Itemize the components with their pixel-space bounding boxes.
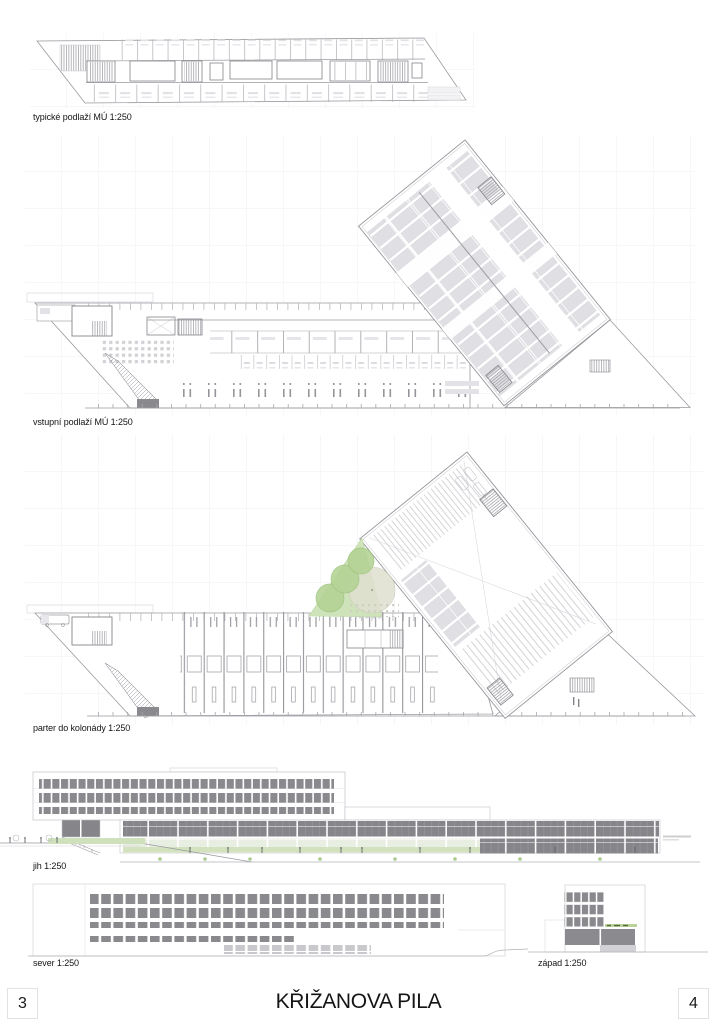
entry-floor-plan-figure <box>25 135 695 415</box>
north-elevation-label: sever 1:250 <box>33 958 79 968</box>
entry-floor-plan-drawing <box>25 135 695 415</box>
south-elevation-figure <box>0 765 717 865</box>
facade-panels <box>123 821 659 837</box>
green-roof-note <box>605 924 637 927</box>
north-elevation-figure <box>28 880 528 960</box>
colonnade-bays <box>180 612 438 713</box>
green-slope <box>48 838 145 844</box>
tree-icon <box>348 548 374 574</box>
colonnade-plan-figure <box>25 435 705 725</box>
window-grid <box>90 890 444 928</box>
column-pairs <box>175 383 470 397</box>
sheet-title: KŘIŽANOVA PILA <box>0 990 717 1014</box>
illegible-note <box>663 836 691 841</box>
window-grid <box>39 776 334 814</box>
typical-floor-plan-figure <box>30 33 475 108</box>
typical-floor-plan-drawing <box>30 33 475 108</box>
west-elevation-drawing <box>528 880 708 960</box>
entry-floor-plan-label: vstupní podlaží MÚ 1:250 <box>33 417 133 427</box>
west-elevation-label: západ 1:250 <box>538 958 586 968</box>
typical-floor-plan-label: typické podlaží MÚ 1:250 <box>33 112 132 122</box>
page-number-right: 4 <box>678 988 709 1019</box>
colonnade-plan-drawing <box>25 435 705 725</box>
shrub-icon <box>13 835 19 841</box>
south-elevation-drawing <box>0 765 717 865</box>
window-grid <box>565 892 604 927</box>
colonnade-plan-label: parter do kolonády 1:250 <box>33 723 130 733</box>
street-greenery <box>158 857 602 861</box>
presentation-sheet: typické podlaží MÚ 1:250 <box>0 0 717 1024</box>
south-elevation-label: jih 1:250 <box>33 861 66 871</box>
window-grid-light <box>224 945 371 954</box>
paving-dots <box>347 601 399 617</box>
west-elevation-figure <box>528 880 708 960</box>
north-elevation-drawing <box>28 880 528 960</box>
